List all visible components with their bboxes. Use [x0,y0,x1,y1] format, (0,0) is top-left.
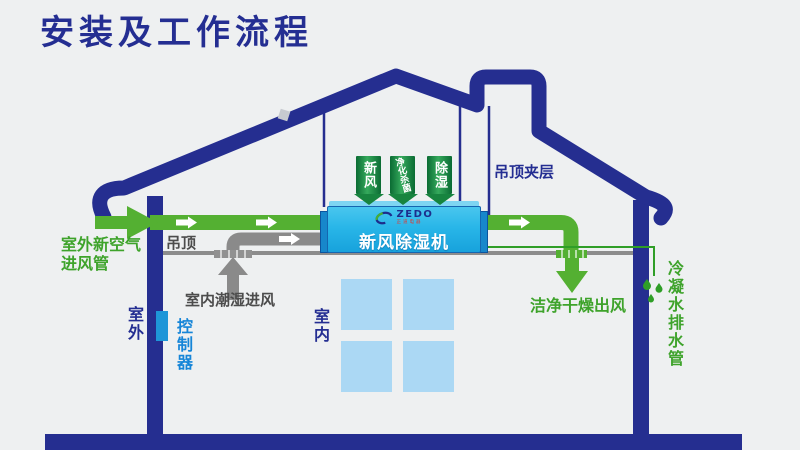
dehumidifier-unit: ZEDO 正道电器 新风除湿机 [321,201,487,251]
right-wall [633,200,649,435]
unit-name-label: 新风除湿机 [328,228,480,253]
brand-name: ZEDO [397,210,434,220]
label-clean-dry-outlet: 洁净干燥出风 [530,292,626,316]
badge-dehumidify: 除湿 [427,156,452,205]
indoor-window [341,279,454,392]
label-outdoor-intake-line1: 室外新空气 [61,235,141,254]
label-indoor: 室内 [308,308,332,344]
diagram-canvas: 安装及工作流程 ZEDO 正道电器 新风除湿机 [0,0,800,450]
humid-intake-grille [214,250,252,258]
label-ceiling-interlayer: 吊顶夹层 [494,161,554,182]
badge-fresh-air-tip [354,194,384,205]
badge-purify-sterilize-tip [388,194,418,205]
badge-purify-sterilize-label: 净化杀菌 [392,156,413,194]
badge-fresh-air: 新风 [356,156,381,205]
badge-fresh-air-body: 新风 [356,156,381,194]
brand-text-stack: ZEDO 正道电器 [397,210,434,226]
outlet-grille [556,250,587,258]
page-title: 安装及工作流程 [40,5,313,54]
swirl-logo-icon [375,211,393,225]
label-outdoor: 室外 [122,306,146,342]
badge-purify-sterilize-body: 净化杀菌 [390,156,415,194]
controller-box [156,311,168,341]
label-controller: 控制器 [171,318,195,372]
label-indoor-humid-intake: 室内潮湿进风 [185,289,275,310]
label-ceiling: 吊顶 [166,232,196,253]
label-condensate-drain-pipe: 冷凝水排水管 [662,260,686,368]
clean-air-down-arrow [556,258,588,293]
badge-fresh-air-label: 新风 [359,161,378,189]
unit-body: ZEDO 正道电器 新风除湿机 [327,206,481,253]
badge-dehumidify-body: 除湿 [427,156,452,194]
badge-dehumidify-label: 除湿 [430,161,449,189]
badge-dehumidify-tip [425,194,455,205]
window-pane [341,279,392,330]
brand-tagline: 正道电器 [397,221,434,226]
window-pane [403,341,454,392]
window-pane [341,341,392,392]
label-outdoor-intake-line2: 进风管 [61,254,109,273]
brand-logo: ZEDO 正道电器 [328,210,480,226]
floor-bar [45,434,742,450]
window-pane [403,279,454,330]
badge-purify-sterilize: 净化杀菌 [390,156,415,205]
